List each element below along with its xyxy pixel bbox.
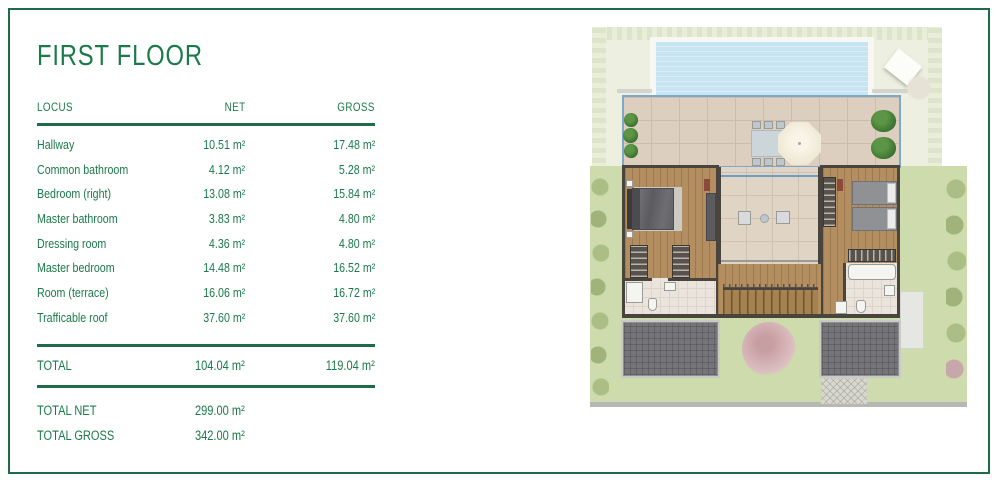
wardrobe (848, 249, 896, 262)
trafficable-roof-right (821, 322, 899, 376)
glass-railing (721, 175, 818, 177)
row-net: 14.48 m² (203, 260, 245, 275)
floor-plan-illustration (590, 25, 980, 440)
door-leaf (837, 179, 843, 191)
bed-pillow (887, 209, 896, 229)
shower (626, 282, 643, 303)
chair (776, 121, 785, 129)
cabinet (706, 193, 716, 241)
row-net: 3.83 m² (209, 211, 245, 226)
hedge-left (592, 27, 606, 168)
wardrobe (823, 177, 836, 227)
terrace-bush (871, 137, 896, 159)
wardrobe (672, 245, 690, 278)
coffee-table (760, 214, 769, 223)
shrub-border-left (591, 175, 609, 400)
garden-tree (742, 322, 796, 376)
table-header-row: LOCUS NET GROSS (37, 97, 375, 117)
row-locus: Hallway (37, 137, 74, 152)
row-gross: 37.60 m² (333, 310, 375, 325)
trafficable-roof-left (623, 322, 718, 376)
nightstand (626, 180, 633, 187)
shrub-border-right (946, 175, 966, 400)
bed-pillows (632, 188, 640, 230)
row-locus: Common bathroom (37, 162, 128, 177)
row-locus: Master bedroom (37, 260, 115, 275)
table-row: Dressing room 4.36 m² 4.80 m² (37, 231, 375, 256)
row-locus: Master bathroom (37, 211, 118, 226)
total-gross: 119.04 m² (326, 358, 375, 373)
row-locus: Trafficable roof (37, 310, 108, 325)
toilet (856, 300, 866, 313)
sliding-door (721, 260, 818, 262)
ground-floor-wall-stub (617, 89, 652, 93)
bed-pillow (887, 183, 896, 203)
row-gross: 16.52 m² (333, 260, 375, 275)
swimming-pool (656, 42, 868, 97)
bathtub (848, 264, 896, 280)
row-gross: 15.84 m² (333, 186, 375, 201)
page-title: FIRST FLOOR (37, 40, 375, 73)
total-row: TOTAL 104.04 m² 119.04 m² (37, 353, 375, 379)
row-net: 13.08 m² (203, 186, 245, 201)
lawn-shadow-edge (590, 402, 967, 407)
table-row: Bedroom (right) 13.08 m² 15.84 m² (37, 181, 375, 206)
header-gross: GROSS (245, 100, 375, 114)
summary-label: TOTAL GROSS (37, 428, 114, 443)
chair (752, 158, 761, 166)
row-gross: 16.72 m² (333, 285, 375, 300)
row-net: 37.60 m² (203, 310, 245, 325)
washer (835, 301, 847, 314)
toilet (648, 298, 657, 311)
summary-value: 342.00 m² (195, 428, 245, 443)
row-net: 4.36 m² (209, 236, 245, 251)
wardrobe (630, 245, 648, 278)
row-locus: Bedroom (right) (37, 186, 111, 201)
summary-row: TOTAL NET 299.00 m² (37, 398, 375, 423)
summary-label: TOTAL NET (37, 403, 96, 418)
bathroom-door-gap (652, 278, 668, 281)
summary-value: 299.00 m² (195, 403, 245, 418)
nightstand (626, 231, 633, 238)
chair (752, 121, 761, 129)
row-locus: Room (terrace) (37, 285, 109, 300)
row-net: 16.06 m² (203, 285, 245, 300)
potted-plant (624, 113, 638, 127)
table-row: Master bedroom 14.48 m² 16.52 m² (37, 255, 375, 280)
ground-floor-wall-stub (872, 89, 908, 93)
chair (764, 121, 773, 129)
terrace-recess (718, 167, 821, 264)
summary-row: TOTAL GROSS 342.00 m² (37, 423, 375, 448)
total-net: 104.04 m² (195, 358, 245, 373)
chair (764, 158, 773, 166)
chair (776, 158, 785, 166)
divider-rule (37, 123, 375, 126)
row-gross: 5.28 m² (339, 162, 375, 177)
header-net: NET (157, 100, 245, 114)
armchair (776, 211, 790, 224)
total-label: TOTAL (37, 358, 72, 373)
table-row: Trafficable roof 37.60 m² 37.60 m² (37, 305, 375, 330)
staircase (723, 288, 818, 314)
armchair (738, 211, 751, 225)
building-bottom-wall (622, 314, 900, 318)
sink (884, 285, 895, 296)
faded-tree (906, 75, 932, 101)
door-leaf (704, 179, 710, 191)
row-gross: 4.80 m² (339, 211, 375, 226)
hedge-right (928, 27, 942, 168)
potted-plant (624, 144, 638, 158)
header-locus: LOCUS (37, 100, 157, 114)
row-gross: 4.80 m² (339, 236, 375, 251)
divider-rule (37, 385, 375, 388)
lower-terrace-pad (900, 291, 924, 349)
row-net: 4.12 m² (209, 162, 245, 177)
row-locus: Dressing room (37, 236, 106, 251)
divider-rule (37, 344, 375, 347)
row-gross: 17.48 m² (333, 137, 375, 152)
table-row: Common bathroom 4.12 m² 5.28 m² (37, 157, 375, 182)
row-net: 10.51 m² (203, 137, 245, 152)
table-row: Room (terrace) 16.06 m² 16.72 m² (37, 280, 375, 305)
garden-path (821, 375, 867, 404)
sink (664, 282, 676, 291)
parasol-pole (798, 142, 801, 145)
terrace-bush (871, 110, 896, 132)
potted-plant (623, 128, 638, 143)
summary-block: TOTAL NET 299.00 m² TOTAL GROSS 342.00 m… (37, 398, 375, 448)
table-row: Master bathroom 3.83 m² 4.80 m² (37, 206, 375, 231)
area-table-panel: FIRST FLOOR LOCUS NET GROSS Hallway 10.5… (37, 40, 375, 448)
table-row: Hallway 10.51 m² 17.48 m² (37, 132, 375, 157)
